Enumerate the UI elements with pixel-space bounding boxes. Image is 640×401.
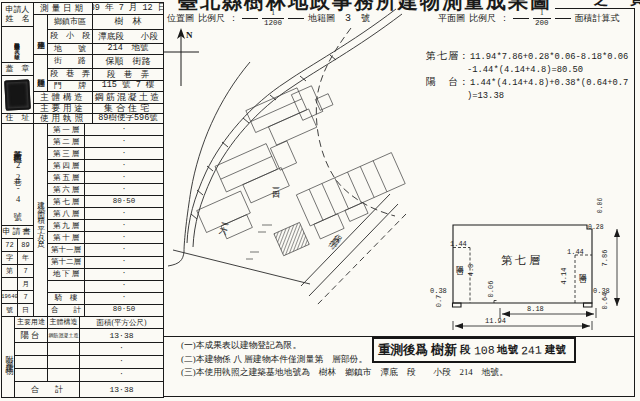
dim-step-left-width: 0.7 [435, 295, 443, 308]
situs-row-label: 鄉鎮市區 [48, 15, 93, 30]
floor-value: · [85, 148, 164, 160]
annex-area: 13·38 [80, 329, 164, 343]
dim-notch-top: 0.28 [588, 224, 604, 231]
note-3: (三)本使用執照之建築基地地號為 樹林 鄉鎮市 潭底 段 小段 214 地號。 [181, 366, 508, 380]
annex-area: · [80, 343, 164, 356]
floor-label: 第 十 層 [48, 232, 85, 244]
structure-value: 鋼筋混凝土造 [93, 92, 164, 104]
situs-row-value: 潭底段 小段 [93, 30, 164, 44]
company-seal [4, 79, 31, 110]
application-cell: 7 [18, 265, 34, 278]
doorplate-row-label: 段 巷 弄 [48, 69, 93, 81]
calc-floor-expr2: -1.44*(4.14+4.8)=80.50 [467, 64, 583, 77]
annex-struct: 鋼筋混凝土造 [48, 329, 80, 343]
floor-plan-drawing [425, 198, 637, 338]
structure-label: 主體構造 [34, 92, 93, 104]
map-parcel-214: 二一四 [269, 183, 280, 186]
floor-label: 第 九 層 [48, 220, 85, 232]
application-cell: 字 [2, 252, 18, 265]
situs-row-label: 段 小 段 [48, 30, 93, 44]
area-calc-title: 面積計算式 [575, 12, 620, 25]
annex-header-use: 主要用途 [15, 317, 48, 329]
annex-struct [48, 356, 80, 369]
floor-value: · [85, 269, 164, 281]
stamp-section-unit: 段 [460, 343, 471, 357]
dim-balcony-right-height: 4.14 [560, 268, 568, 285]
annex-grid: 主要用途 主體構造 面積(平方公尺) 陽台 鋼筋混凝土造 13·38 · · ·… [15, 317, 164, 398]
stamp-parcel-unit: 地號 [497, 343, 518, 357]
scale-fraction: 1 200 [533, 9, 551, 27]
dim-width-total: 11.94 [485, 317, 506, 325]
usage-label: 主要用途 [34, 104, 93, 114]
floor-value-7f: 80·50 [85, 196, 164, 208]
right-border [634, 8, 635, 397]
floor-value: · [85, 293, 164, 305]
annex-use [15, 369, 48, 382]
license-label: 使用執照 [34, 114, 93, 124]
floor-total-label: 合 計 [48, 305, 85, 317]
dim-step-right-width: 0.64 [601, 293, 609, 310]
floor-label: 地 下 層 [48, 269, 85, 281]
address-label: 住 址 [2, 114, 34, 124]
frac-numerator: 1 [540, 9, 544, 18]
floor-value: · [85, 124, 164, 136]
stamp-prefix: 重測後爲 [378, 342, 428, 359]
stamp-building-unit: 建號 [545, 343, 566, 357]
annex-band: 附屬建物 [2, 317, 15, 398]
floor-label: 第 四 層 [48, 160, 85, 172]
floor-value: · [85, 244, 164, 256]
annex-area: · [80, 356, 164, 369]
stamp-parcel-no: 108 [473, 343, 494, 357]
stamp-section: 樹新 [431, 341, 457, 359]
annex-total-label: 合 計 [15, 382, 80, 398]
application-cell [2, 278, 18, 291]
dim-balcony-right-width: 1.44 [567, 248, 584, 256]
dim-height-total: 7.86 [601, 250, 609, 267]
floor-value: · [85, 208, 164, 220]
annex-header-struct: 主體構造 [48, 317, 80, 329]
calc-floor-expr: 11.94*7.86+0.28*0.06-8.18*0.06 [470, 51, 628, 64]
dim-width-inner: 8.18 [527, 305, 544, 313]
doorplate-row-value: 保順 街路 [93, 55, 164, 69]
application-cell: 第 [2, 265, 18, 278]
applicant-address: 新莊市大觀街42巷2-4號 [2, 124, 34, 226]
top-border [555, 8, 635, 9]
floor-plan: 第七層 陽台 陽台 1.44 4.8 0.38 0.7 1.44 4.14 0.… [425, 198, 637, 338]
floor-label: 第 五 層 [48, 172, 85, 184]
situs-row-label: 地 號 [48, 44, 93, 55]
floor-label: 第 一 層 [48, 124, 85, 136]
annex-use: 陽台 [15, 329, 48, 343]
application-cell: 89 [18, 239, 34, 252]
application-header: 申請書 [2, 226, 34, 239]
floor-value: · [85, 232, 164, 244]
application-cell: 號 [2, 304, 18, 317]
doorplate-row-value: 段 巷 弄 [93, 69, 164, 81]
fraction-rule [513, 18, 529, 19]
floor-value: · [85, 184, 164, 196]
applicant-name: 銘騰建設股份有限公司 代表人：陳敏雄 [2, 27, 34, 63]
colon: ： [500, 12, 509, 25]
doorplate-row-label: 街 路 [48, 55, 93, 69]
seal-cell [2, 76, 34, 114]
floor-value: · [85, 281, 164, 293]
floor-label: 第十二層 [48, 257, 85, 269]
floor-value: · [85, 257, 164, 269]
floor-value: · [85, 136, 164, 148]
floor-label: 第 六 層 [48, 184, 85, 196]
floor-label: 騎 樓 [48, 293, 85, 305]
floor-label: 第 八 層 [48, 208, 85, 220]
applicant-header-l2: 姓 名 [6, 15, 30, 24]
floor-label [48, 281, 85, 293]
application-cell: 19640 [2, 291, 18, 304]
resurvey-stamp: 重測後爲 樹新 段 108 地號 241 建號 [372, 337, 576, 363]
floor-total-value: 80·50 [85, 305, 164, 317]
situs-row-value: 214 地號 [93, 44, 164, 55]
frac-denominator: 200 [533, 18, 551, 28]
floor-area-band: 建築面積（平方公尺） [34, 124, 48, 317]
doorplate-band: 建物門牌 [34, 55, 48, 92]
application-cell: 年 [18, 252, 34, 265]
doorplate-row-label: 門 牌 [48, 81, 93, 92]
calc-balcony-expr: 1.44*(4.14+4.8)+0.38*(0.64+0.7 [470, 77, 628, 90]
fraction-rule [555, 18, 571, 19]
survey-date-label: 測量日期 [34, 3, 93, 15]
floor-area-grid: 第 一 層 · 第 二 層 · 第 三 層 · 第 四 層 · 第 五 層 · … [48, 124, 164, 317]
annex-area: · [80, 369, 164, 382]
seal-label: 蓋 章 [2, 63, 34, 76]
situs-row-value: 樹 林 [93, 15, 164, 30]
survey-result-sheet: 臺北縣樹林地政事務所建物測量成果圖 之 頁 位置圖 比例尺 ： 1 1200 地… [0, 0, 640, 401]
situs-band: 建物座落 [34, 15, 48, 55]
floor-value: · [85, 172, 164, 184]
survey-date-value: 89 年 7 月 12 日 [93, 3, 164, 15]
application-cell: 72 [2, 239, 18, 252]
floor-value: · [85, 220, 164, 232]
annex-total-value: 13·38 [80, 382, 164, 398]
dim-notch-top-depth: 0.06 [597, 198, 604, 214]
application-cell: 月 [18, 278, 34, 291]
usage-value: 集合住宅 [93, 104, 164, 114]
stamp-building-no: 241 [521, 343, 542, 357]
annex-use [15, 356, 48, 369]
plan-floor-label: 第七層 [501, 253, 543, 268]
floor-label: 第 三 層 [48, 148, 85, 160]
dim-balcony-left-height: 4.8 [467, 264, 475, 277]
dim-balcony-left-width: 1.44 [450, 240, 467, 248]
annex-use [15, 343, 48, 356]
license-value: 89樹使字596號 [93, 114, 164, 124]
floor-value: · [85, 160, 164, 172]
floor-label: 第 二 層 [48, 136, 85, 148]
application-cell: 日 [18, 304, 34, 317]
bottom-border [163, 396, 635, 397]
floor-label: 第 七 層 [48, 196, 85, 208]
application-grid: 72 89 字 年 第 7 月 19640 7 號 日 [2, 239, 34, 317]
doorplate-row-value: 115 號 7 樓 [93, 81, 164, 92]
annex-struct [48, 343, 80, 356]
applicant-header: 申請人 姓 名 [2, 3, 34, 27]
application-cell: 7 [18, 291, 34, 304]
info-table: 申請人 姓 名 銘騰建設股份有限公司 代表人：陳敏雄 蓋 章 住 址 測量日期 … [1, 2, 164, 398]
annex-header-area: 面積(平方公尺) [80, 317, 164, 329]
floor-label: 第十一層 [48, 244, 85, 256]
annex-struct [48, 369, 80, 382]
dim-notch-bottom: 0.06 [487, 281, 495, 298]
